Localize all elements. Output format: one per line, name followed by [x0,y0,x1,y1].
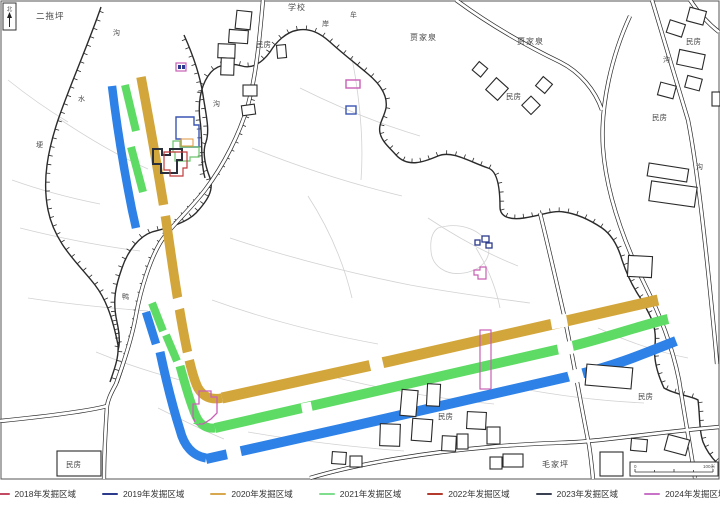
label-place: 贾家泉 [517,36,544,46]
building [380,424,401,447]
building [243,85,257,96]
legend-item-2021: 2021年发掘区域 [319,488,401,500]
label-minfang: 民房 [652,112,667,122]
building [218,44,235,59]
north-arrow: 北 [3,3,16,30]
label-gully: 沟 [113,28,120,37]
mark-navy-dot [178,65,181,69]
building [631,438,648,451]
label-gully: 水 [78,94,85,103]
north-label: 北 [7,5,13,13]
legend-label-2024: 2024年发掘区域 [665,488,720,500]
label-place: 牟 [350,10,357,19]
label-gully: 埂 [36,140,43,149]
legend-swatch-2019 [102,493,118,495]
map-canvas: 二拖坪 学校 牟 岸 贾家泉 贾家泉 民房 民房 民房 民房 沟 水 埂 沟 沟… [0,0,720,481]
building [426,384,440,407]
label-minfang: 民房 [686,36,701,46]
legend-item-2024: 2024年发掘区域 [644,488,720,500]
building [503,454,523,467]
building [411,418,432,441]
label-minfang: 民房 [638,391,653,401]
legend-label-2023: 2023年发掘区域 [557,488,618,500]
excavation-map: 二拖坪 学校 牟 岸 贾家泉 贾家泉 民房 民房 民房 民房 沟 水 埂 沟 沟… [0,0,720,481]
building [585,364,633,389]
scale-bar: 0 100米 [630,462,718,476]
legend-label-2018: 2018年发掘区域 [15,488,76,500]
building [712,92,720,106]
scale-end: 100米 [703,463,716,470]
legend: 2018年发掘区域 2019年发掘区域 2020年发掘区域 2021年发掘区域 … [0,482,720,506]
label-place: 贾家泉 [410,32,437,42]
label-minfang: 民房 [438,411,453,421]
building [487,427,500,444]
building [276,45,286,59]
legend-swatch-2021 [319,493,335,495]
legend-swatch-2024 [644,493,660,495]
building [235,10,252,29]
label-minfang: 民房 [506,91,521,101]
legend-item-2022: 2022年发掘区域 [427,488,509,500]
building [442,436,457,452]
legend-item-2023: 2023年发掘区域 [536,488,618,500]
legend-swatch-2020 [210,493,226,495]
label-gully: 沟 [696,162,703,171]
label-gully: 沟 [213,99,220,108]
legend-item-2018: 2018年发掘区域 [0,488,76,500]
label-minfang: 民房 [66,459,81,469]
building [467,412,487,430]
building [457,434,468,449]
label-minfang: 民房 [256,39,271,49]
legend-swatch-2023 [536,493,552,495]
building [490,457,502,469]
legend-swatch-2022 [427,493,443,495]
legend-label-2022: 2022年发掘区域 [448,488,509,500]
building [627,255,652,277]
legend-item-2019: 2019年发掘区域 [102,488,184,500]
building [400,389,418,416]
label-place: 毛家坪 [542,459,569,469]
building [229,29,249,43]
label-gully: 沟 [663,55,670,64]
site-map-page: 二拖坪 学校 牟 岸 贾家泉 贾家泉 民房 民房 民房 民房 沟 水 埂 沟 沟… [0,0,720,506]
building [350,456,362,467]
label-place: 二拖坪 [36,11,65,21]
building [221,58,235,75]
label-place: 鸭 [122,292,129,301]
legend-label-2019: 2019年发掘区域 [123,488,184,500]
label-place: 学校 [288,2,306,12]
legend-swatch-2018 [0,493,10,495]
label-place: 岸 [322,20,329,28]
building [332,452,347,465]
legend-item-2020: 2020年发掘区域 [210,488,292,500]
building [241,104,255,116]
building [600,452,623,476]
mark-navy-dot [182,65,185,69]
legend-label-2021: 2021年发掘区域 [340,488,401,500]
legend-label-2020: 2020年发掘区域 [231,488,292,500]
